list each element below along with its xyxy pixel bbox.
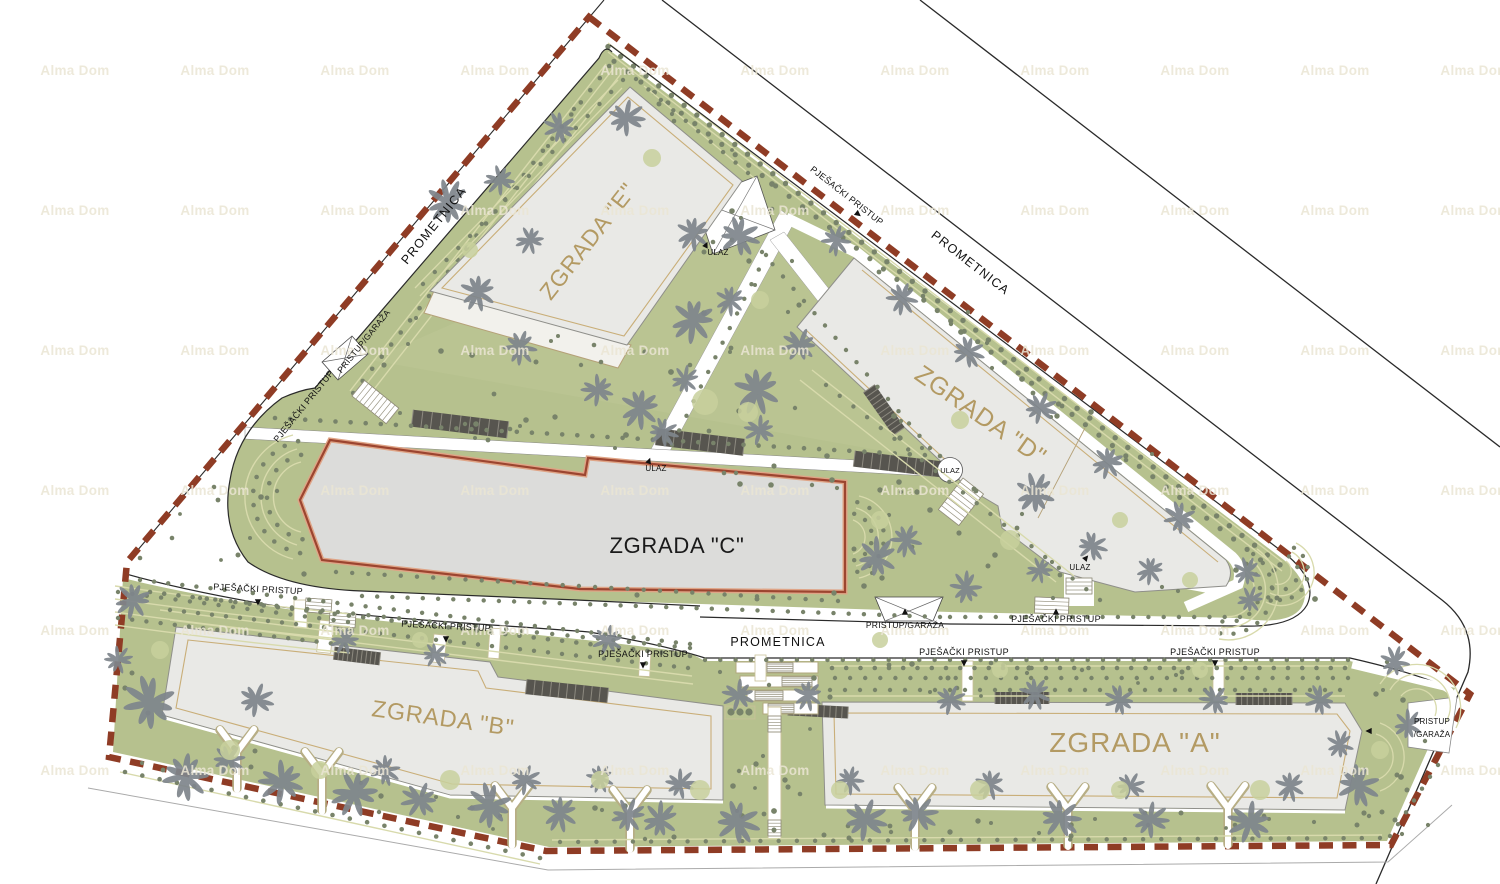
svg-text:Alma Dom: Alma Dom: [40, 623, 109, 638]
svg-text:Alma Dom: Alma Dom: [740, 63, 809, 78]
svg-text:Alma Dom: Alma Dom: [1020, 343, 1089, 358]
svg-text:Alma Dom: Alma Dom: [320, 483, 389, 498]
svg-text:Alma Dom: Alma Dom: [1160, 623, 1229, 638]
svg-text:PJEŠAČKI PRISTUP: PJEŠAČKI PRISTUP: [1170, 647, 1260, 657]
svg-text:Alma Dom: Alma Dom: [1440, 483, 1500, 498]
svg-text:Alma Dom: Alma Dom: [40, 63, 109, 78]
svg-text:Alma Dom: Alma Dom: [1300, 623, 1369, 638]
svg-text:Alma Dom: Alma Dom: [600, 483, 669, 498]
svg-text:Alma Dom: Alma Dom: [40, 483, 109, 498]
svg-text:Alma Dom: Alma Dom: [180, 763, 249, 778]
svg-text:ULAZ: ULAZ: [645, 464, 666, 473]
svg-text:Alma Dom: Alma Dom: [880, 203, 949, 218]
svg-text:Alma Dom: Alma Dom: [880, 483, 949, 498]
svg-text:Alma Dom: Alma Dom: [740, 763, 809, 778]
svg-text:Alma Dom: Alma Dom: [320, 623, 389, 638]
svg-text:Alma Dom: Alma Dom: [1160, 63, 1229, 78]
svg-text:PJEŠAČKI PRISTUP: PJEŠAČKI PRISTUP: [598, 649, 688, 659]
svg-text:ULAZ: ULAZ: [1069, 563, 1090, 572]
svg-text:Alma Dom: Alma Dom: [1300, 483, 1369, 498]
svg-text:Alma Dom: Alma Dom: [40, 343, 109, 358]
svg-text:Alma Dom: Alma Dom: [1300, 203, 1369, 218]
svg-text:ZGRADA "C": ZGRADA "C": [609, 533, 744, 558]
svg-text:Alma Dom: Alma Dom: [880, 63, 949, 78]
svg-text:Alma Dom: Alma Dom: [880, 343, 949, 358]
svg-text:Alma Dom: Alma Dom: [1160, 483, 1229, 498]
svg-text:Alma Dom: Alma Dom: [1440, 343, 1500, 358]
svg-text:Alma Dom: Alma Dom: [1020, 483, 1089, 498]
svg-text:Alma Dom: Alma Dom: [1020, 63, 1089, 78]
svg-text:Alma Dom: Alma Dom: [1020, 763, 1089, 778]
svg-text:Alma Dom: Alma Dom: [1160, 343, 1229, 358]
svg-text:Alma Dom: Alma Dom: [460, 343, 529, 358]
svg-text:Alma Dom: Alma Dom: [180, 343, 249, 358]
svg-text:Alma Dom: Alma Dom: [320, 63, 389, 78]
svg-text:Alma Dom: Alma Dom: [1300, 763, 1369, 778]
svg-text:Alma Dom: Alma Dom: [180, 623, 249, 638]
svg-text:ULAZ: ULAZ: [940, 466, 960, 475]
svg-text:Alma Dom: Alma Dom: [740, 203, 809, 218]
svg-text:Alma Dom: Alma Dom: [1440, 623, 1500, 638]
svg-text:Alma Dom: Alma Dom: [1300, 63, 1369, 78]
svg-text:ULAZ: ULAZ: [707, 248, 728, 257]
svg-text:Alma Dom: Alma Dom: [460, 63, 529, 78]
svg-text:Alma Dom: Alma Dom: [320, 763, 389, 778]
svg-text:Alma Dom: Alma Dom: [460, 763, 529, 778]
svg-text:Alma Dom: Alma Dom: [600, 623, 669, 638]
svg-text:Alma Dom: Alma Dom: [40, 203, 109, 218]
svg-text:PJEŠAČKI PRISTUP: PJEŠAČKI PRISTUP: [919, 647, 1009, 657]
svg-text:Alma Dom: Alma Dom: [600, 63, 669, 78]
svg-text:Alma Dom: Alma Dom: [880, 763, 949, 778]
svg-text:Alma Dom: Alma Dom: [180, 483, 249, 498]
svg-text:Alma Dom: Alma Dom: [600, 763, 669, 778]
svg-text:Alma Dom: Alma Dom: [180, 203, 249, 218]
svg-text:PJEŠAČKI PRISTUP: PJEŠAČKI PRISTUP: [1011, 614, 1101, 624]
svg-text:Alma Dom: Alma Dom: [460, 203, 529, 218]
svg-text:Alma Dom: Alma Dom: [1160, 763, 1229, 778]
svg-text:Alma Dom: Alma Dom: [460, 483, 529, 498]
svg-text:PROMETNICA: PROMETNICA: [730, 635, 825, 649]
svg-text:Alma Dom: Alma Dom: [740, 483, 809, 498]
svg-text:Alma Dom: Alma Dom: [740, 343, 809, 358]
svg-text:PRISTUP/GARAŽA: PRISTUP/GARAŽA: [866, 620, 944, 630]
svg-text:PRISTUP: PRISTUP: [1414, 717, 1450, 726]
svg-text:Alma Dom: Alma Dom: [600, 343, 669, 358]
svg-text:Alma Dom: Alma Dom: [1440, 763, 1500, 778]
svg-text:Alma Dom: Alma Dom: [1020, 623, 1089, 638]
svg-text:/GARAŽA: /GARAŽA: [1414, 730, 1451, 739]
svg-text:Alma Dom: Alma Dom: [1160, 203, 1229, 218]
svg-text:Alma Dom: Alma Dom: [1020, 203, 1089, 218]
svg-text:Alma Dom: Alma Dom: [40, 763, 109, 778]
svg-text:Alma Dom: Alma Dom: [600, 203, 669, 218]
svg-text:ZGRADA "A": ZGRADA "A": [1049, 727, 1220, 758]
svg-text:Alma Dom: Alma Dom: [1440, 203, 1500, 218]
svg-text:Alma Dom: Alma Dom: [320, 203, 389, 218]
svg-text:Alma Dom: Alma Dom: [180, 63, 249, 78]
svg-text:Alma Dom: Alma Dom: [1300, 343, 1369, 358]
svg-text:Alma Dom: Alma Dom: [1440, 63, 1500, 78]
